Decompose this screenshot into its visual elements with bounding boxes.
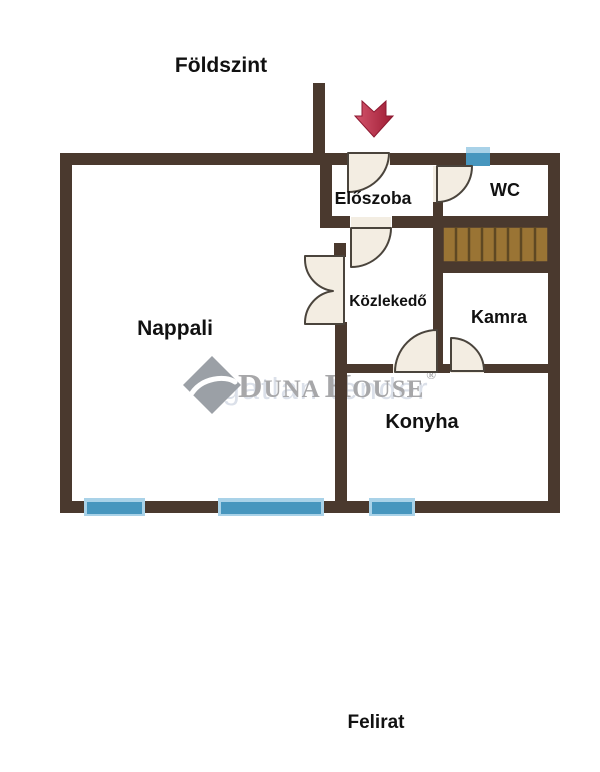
page-title: Földszint	[175, 54, 267, 77]
wall-left-outer	[60, 153, 72, 513]
room-label-wc: WC	[490, 180, 520, 200]
kamra-door-swing	[451, 338, 484, 371]
nappali-double-door	[305, 256, 344, 324]
wall-eloszoba-wc-bottom	[392, 216, 560, 228]
wall-stairs-bottom	[433, 262, 560, 273]
entrance-arrow-icon	[355, 101, 393, 137]
window-nappali-2	[218, 498, 324, 516]
room-label-nappali: Nappali	[137, 317, 213, 340]
entrance-door-swing	[348, 153, 389, 192]
wc-door-swing	[437, 166, 472, 202]
konyha-door-swing	[395, 330, 437, 372]
floor-plan-page: { "page": { "background": "#ffffff", "ty…	[0, 0, 600, 772]
window-konyha	[369, 498, 415, 516]
room-label-konyha: Konyha	[385, 411, 459, 433]
room-label-kozlekedo: Közlekedő	[349, 293, 427, 310]
wall-right-outer	[548, 153, 560, 513]
wall-double-door-stub	[334, 243, 346, 257]
wall-konyha-top-right	[483, 364, 548, 373]
kozlekedo-door-swing	[351, 228, 391, 267]
room-label-eloszoba: Előszoba	[335, 188, 412, 208]
wall-entrance-stub	[313, 83, 325, 165]
room-label-kamra: Kamra	[471, 307, 528, 327]
window-nappali-1	[84, 498, 145, 516]
window-wc	[466, 147, 490, 166]
caption: Felirat	[347, 712, 405, 733]
kozlekedo-doorway	[351, 217, 391, 228]
staircase	[443, 227, 548, 262]
floor-plan-svg: Földszint ingatlan tender DUNAHOUSE®	[0, 0, 600, 772]
wall-nappali-konyha-divider	[335, 322, 347, 513]
wall-top-left	[60, 153, 348, 165]
wall-eloszoba-bottom-left	[320, 216, 350, 228]
